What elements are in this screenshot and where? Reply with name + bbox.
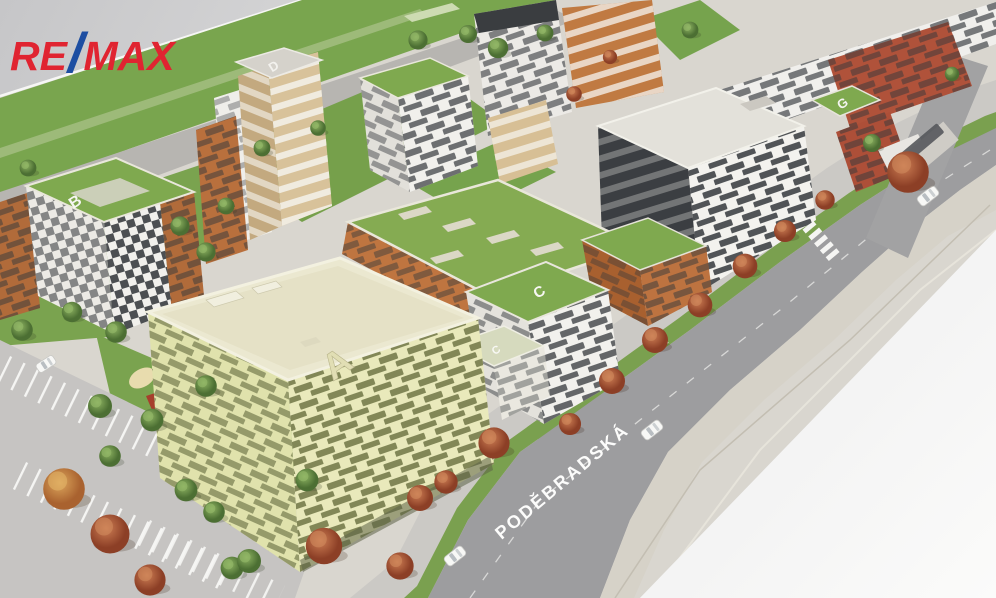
architectural-model-photo: RE / MAX (0, 0, 996, 598)
remax-logo: RE / MAX (10, 26, 175, 86)
logo-re: RE (10, 36, 67, 77)
logo-slash-icon: / (68, 25, 84, 81)
logo-max: MAX (84, 36, 175, 77)
building-white-mid (360, 58, 478, 192)
model-scene: PODĚBRADSKÁ M G (0, 0, 996, 598)
